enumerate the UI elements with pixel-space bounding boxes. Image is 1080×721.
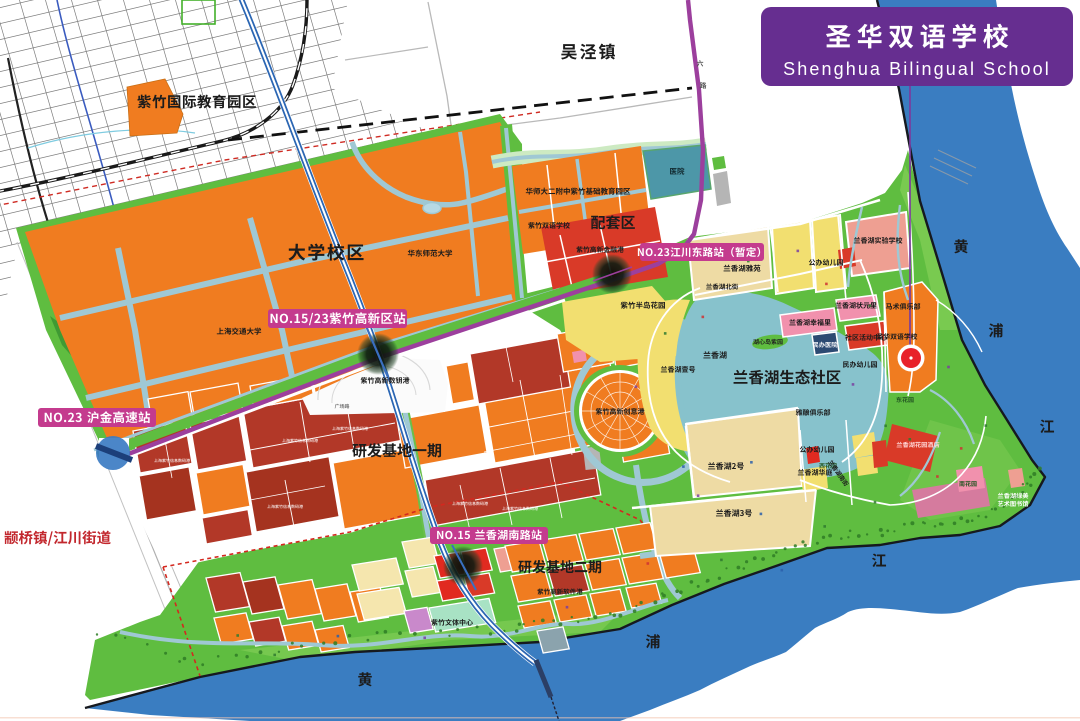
svg-text:Shenghua Bilingual School: Shenghua Bilingual School [783,59,1051,79]
